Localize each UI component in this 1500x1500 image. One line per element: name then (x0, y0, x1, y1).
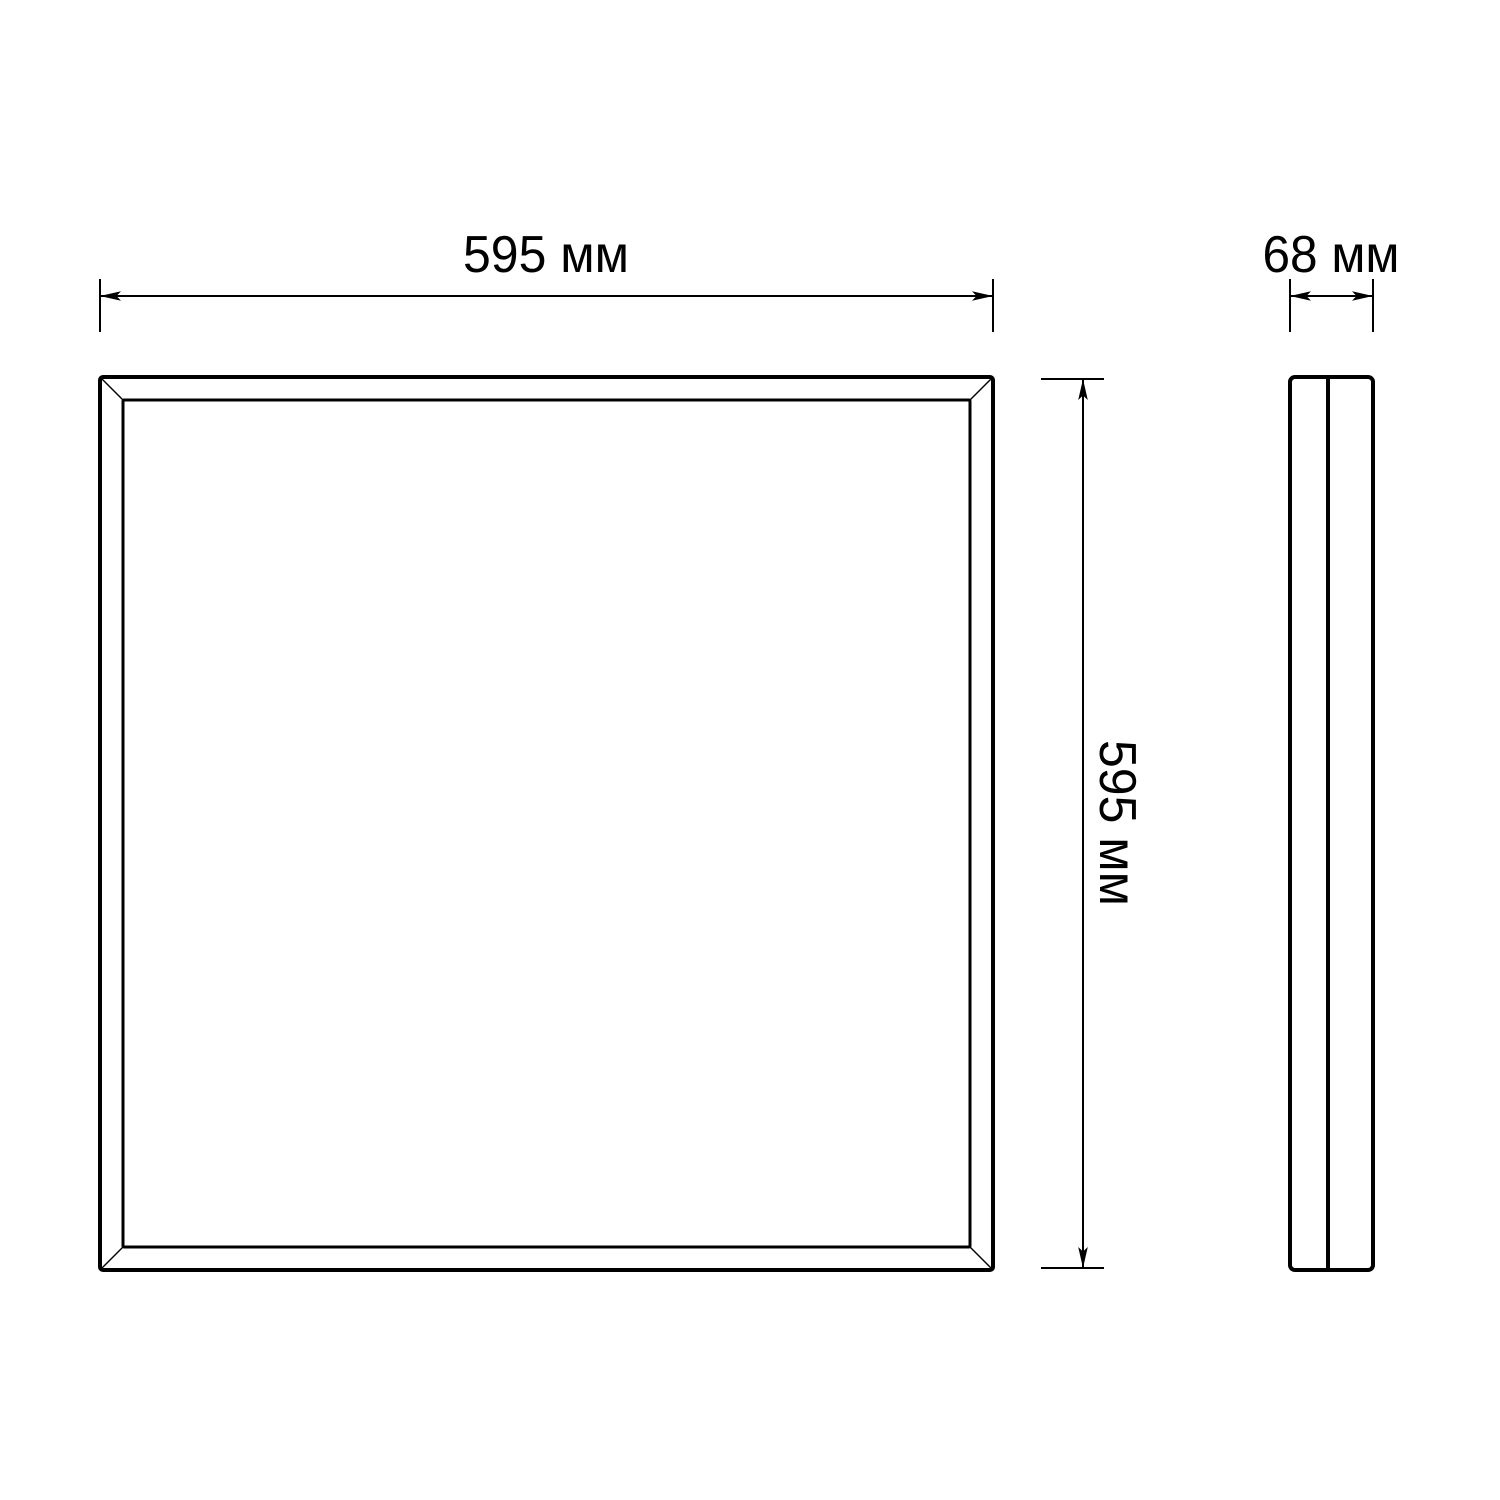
front-view-outer-frame (100, 377, 993, 1270)
height-dimension: 595 мм (1041, 379, 1146, 1268)
depth-dimension: 68 мм (1263, 226, 1400, 332)
side-view-outline (1290, 377, 1373, 1270)
depth-dimension-label: 68 мм (1263, 226, 1400, 284)
width-dimension-label: 595 мм (463, 226, 629, 284)
height-dimension-label: 595 мм (1088, 740, 1146, 906)
technical-drawing-canvas: 595 мм 595 мм 68 мм (0, 0, 1500, 1500)
side-view (1290, 377, 1373, 1270)
front-view (100, 377, 993, 1270)
width-dimension: 595 мм (100, 226, 993, 332)
panel-dimension-drawing: 595 мм 595 мм 68 мм (0, 0, 1500, 1500)
